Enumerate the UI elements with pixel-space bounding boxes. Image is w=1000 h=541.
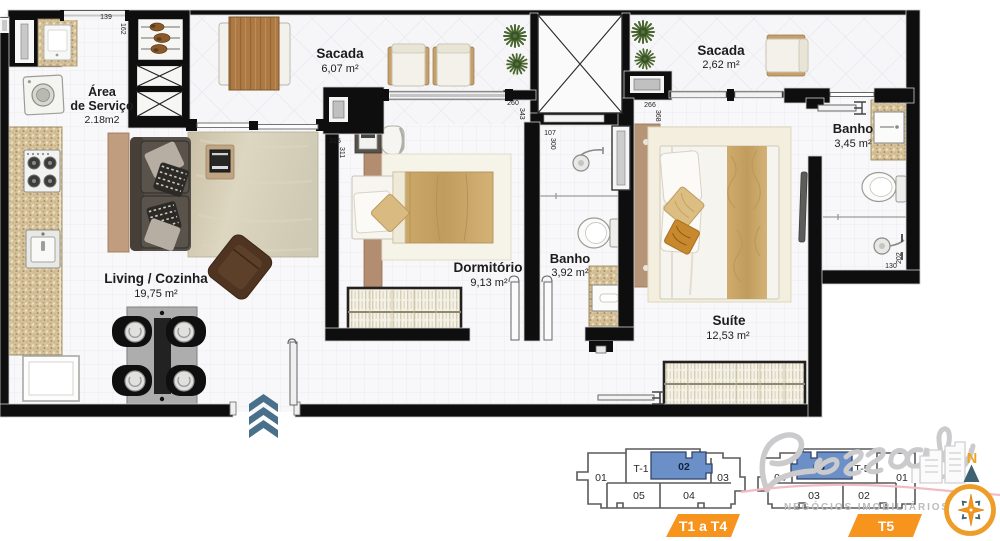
svg-text:202: 202 <box>896 252 903 264</box>
svg-text:Área: Área <box>88 84 117 99</box>
svg-text:Banho: Banho <box>550 251 591 266</box>
svg-text:02: 02 <box>678 461 690 473</box>
svg-text:343: 343 <box>518 108 525 120</box>
svg-text:260: 260 <box>507 100 519 107</box>
svg-text:9,13 m²: 9,13 m² <box>470 277 508 289</box>
svg-text:Sacada: Sacada <box>316 46 364 61</box>
svg-text:03: 03 <box>808 490 820 502</box>
svg-text:T5: T5 <box>878 518 895 534</box>
svg-text:Dormitório: Dormitório <box>454 260 523 275</box>
svg-text:01: 01 <box>896 472 908 484</box>
svg-text:03: 03 <box>717 472 729 484</box>
svg-text:3,92 m²: 3,92 m² <box>551 267 589 279</box>
svg-text:300: 300 <box>549 138 556 150</box>
svg-text:de Serviço: de Serviço <box>70 99 134 113</box>
svg-text:2,62 m²: 2,62 m² <box>702 59 740 71</box>
svg-text:N: N <box>967 451 977 467</box>
svg-text:266: 266 <box>644 102 656 109</box>
svg-text:315: 315 <box>329 138 341 145</box>
svg-text:107: 107 <box>544 130 556 137</box>
svg-text:02: 02 <box>858 490 870 502</box>
svg-text:Suíte: Suíte <box>712 313 745 328</box>
svg-text:Sacada: Sacada <box>697 43 745 58</box>
svg-text:NEGÓCIOS IMOBILIÁRIOS: NEGÓCIOS IMOBILIÁRIOS <box>784 500 950 513</box>
svg-text:2.18m2: 2.18m2 <box>84 114 119 126</box>
svg-text:139: 139 <box>100 14 112 21</box>
svg-text:01: 01 <box>595 472 607 484</box>
svg-text:05: 05 <box>633 490 645 502</box>
svg-text:19,75 m²: 19,75 m² <box>134 288 178 300</box>
svg-text:6,07 m²: 6,07 m² <box>321 63 359 75</box>
svg-text:162: 162 <box>119 23 126 35</box>
svg-text:3,45 m²: 3,45 m² <box>834 138 872 150</box>
svg-text:12,53 m²: 12,53 m² <box>706 330 750 342</box>
svg-text:368: 368 <box>654 110 661 122</box>
svg-text:Living / Cozinha: Living / Cozinha <box>104 271 208 286</box>
svg-text:311: 311 <box>338 147 345 158</box>
svg-text:T-1: T-1 <box>633 463 648 475</box>
svg-text:04: 04 <box>683 490 695 502</box>
svg-text:T1 a T4: T1 a T4 <box>679 518 727 534</box>
svg-text:Banho: Banho <box>833 121 874 136</box>
